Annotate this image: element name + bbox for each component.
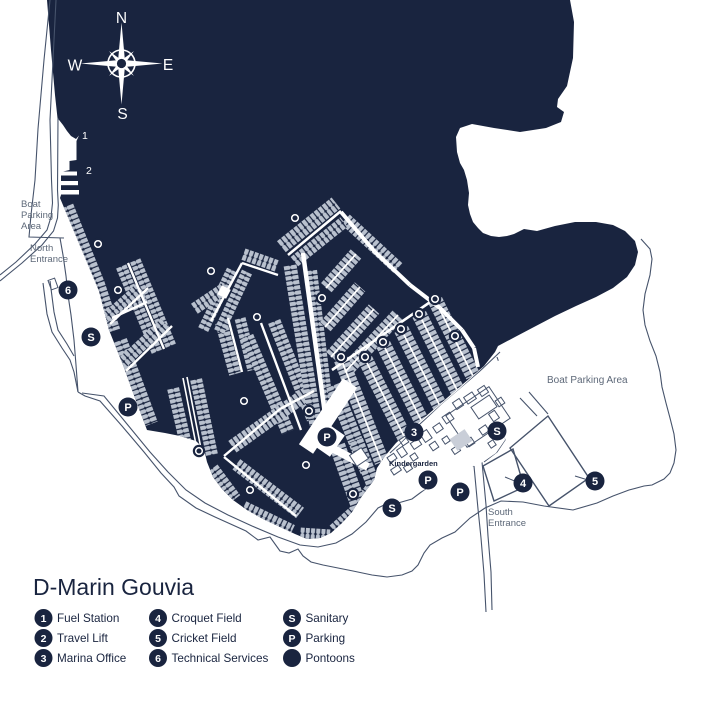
- svg-text:Sanitary: Sanitary: [306, 612, 349, 625]
- svg-text:Marina Office: Marina Office: [57, 652, 126, 665]
- svg-text:Area: Area: [21, 221, 42, 232]
- svg-text:3: 3: [411, 427, 417, 439]
- svg-text:P: P: [288, 633, 295, 645]
- svg-text:W: W: [68, 58, 83, 75]
- svg-text:1: 1: [82, 130, 88, 142]
- svg-text:P: P: [424, 475, 431, 487]
- svg-text:S: S: [388, 503, 395, 515]
- svg-text:Boat: Boat: [21, 199, 41, 210]
- svg-text:2: 2: [41, 633, 47, 645]
- svg-text:P: P: [124, 402, 131, 414]
- svg-text:D-Marin Gouvia: D-Marin Gouvia: [33, 574, 194, 600]
- svg-text:5: 5: [155, 633, 161, 645]
- svg-text:Fuel Station: Fuel Station: [57, 612, 119, 625]
- svg-text:P: P: [456, 487, 463, 499]
- svg-text:South: South: [488, 507, 513, 518]
- svg-text:S: S: [117, 106, 127, 123]
- svg-text:Technical Services: Technical Services: [172, 652, 269, 665]
- svg-text:North: North: [30, 243, 53, 254]
- svg-text:6: 6: [155, 653, 161, 665]
- svg-text:3: 3: [41, 653, 47, 665]
- svg-text:Entrance: Entrance: [30, 254, 68, 265]
- svg-text:6: 6: [65, 285, 71, 297]
- svg-text:1: 1: [41, 613, 47, 625]
- svg-text:Travel Lift: Travel Lift: [57, 632, 109, 645]
- svg-text:S: S: [288, 613, 295, 625]
- svg-text:2: 2: [86, 165, 92, 177]
- svg-text:5: 5: [592, 476, 598, 488]
- svg-text:E: E: [163, 57, 173, 74]
- svg-text:Pontoons: Pontoons: [306, 652, 356, 665]
- svg-text:Parking: Parking: [306, 632, 346, 645]
- svg-text:Kindergarden: Kindergarden: [389, 459, 438, 468]
- svg-text:4: 4: [155, 613, 161, 625]
- svg-text:Boat Parking Area: Boat Parking Area: [547, 375, 628, 386]
- svg-text:N: N: [116, 10, 127, 27]
- svg-text:Parking: Parking: [21, 210, 53, 221]
- svg-text:4: 4: [520, 478, 527, 490]
- svg-text:Cricket Field: Cricket Field: [172, 632, 237, 645]
- svg-text:P: P: [323, 432, 330, 444]
- svg-text:S: S: [493, 426, 500, 438]
- svg-text:Croquet Field: Croquet Field: [172, 612, 242, 625]
- svg-text:Entrance: Entrance: [488, 518, 526, 529]
- svg-text:S: S: [87, 332, 94, 344]
